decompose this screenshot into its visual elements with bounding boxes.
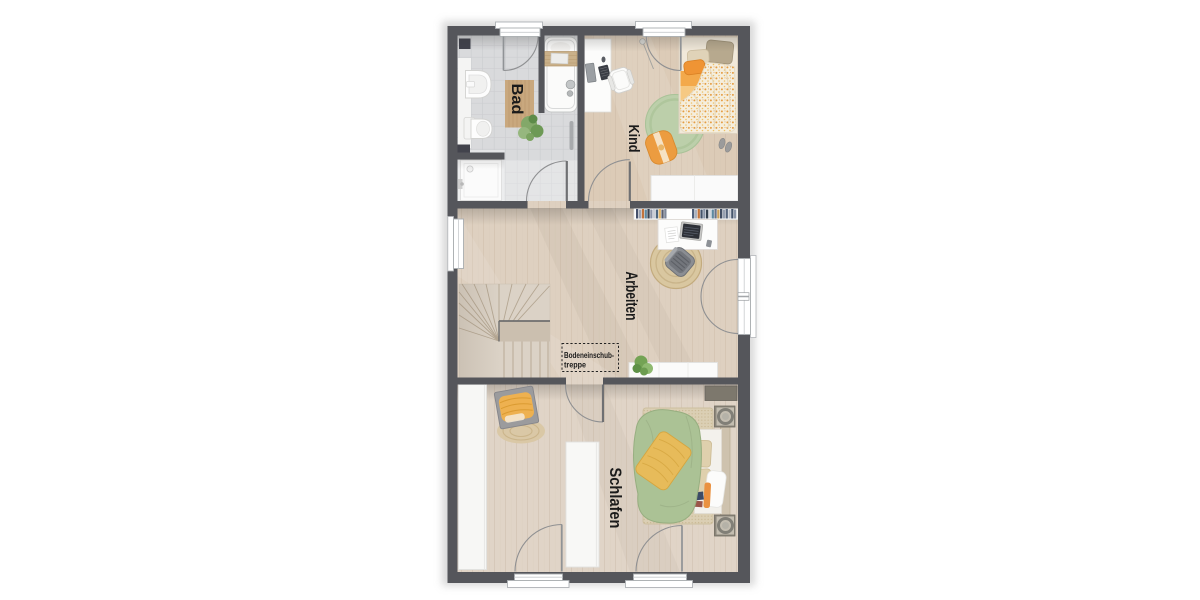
svg-text:treppe: treppe	[564, 361, 587, 370]
svg-text:Arbeiten: Arbeiten	[622, 272, 641, 321]
svg-text:Bodeneinschub-: Bodeneinschub-	[564, 351, 614, 360]
svg-text:Schlafen: Schlafen	[606, 468, 624, 529]
svg-text:Kind: Kind	[625, 125, 642, 153]
svg-text:Bad: Bad	[508, 84, 525, 115]
